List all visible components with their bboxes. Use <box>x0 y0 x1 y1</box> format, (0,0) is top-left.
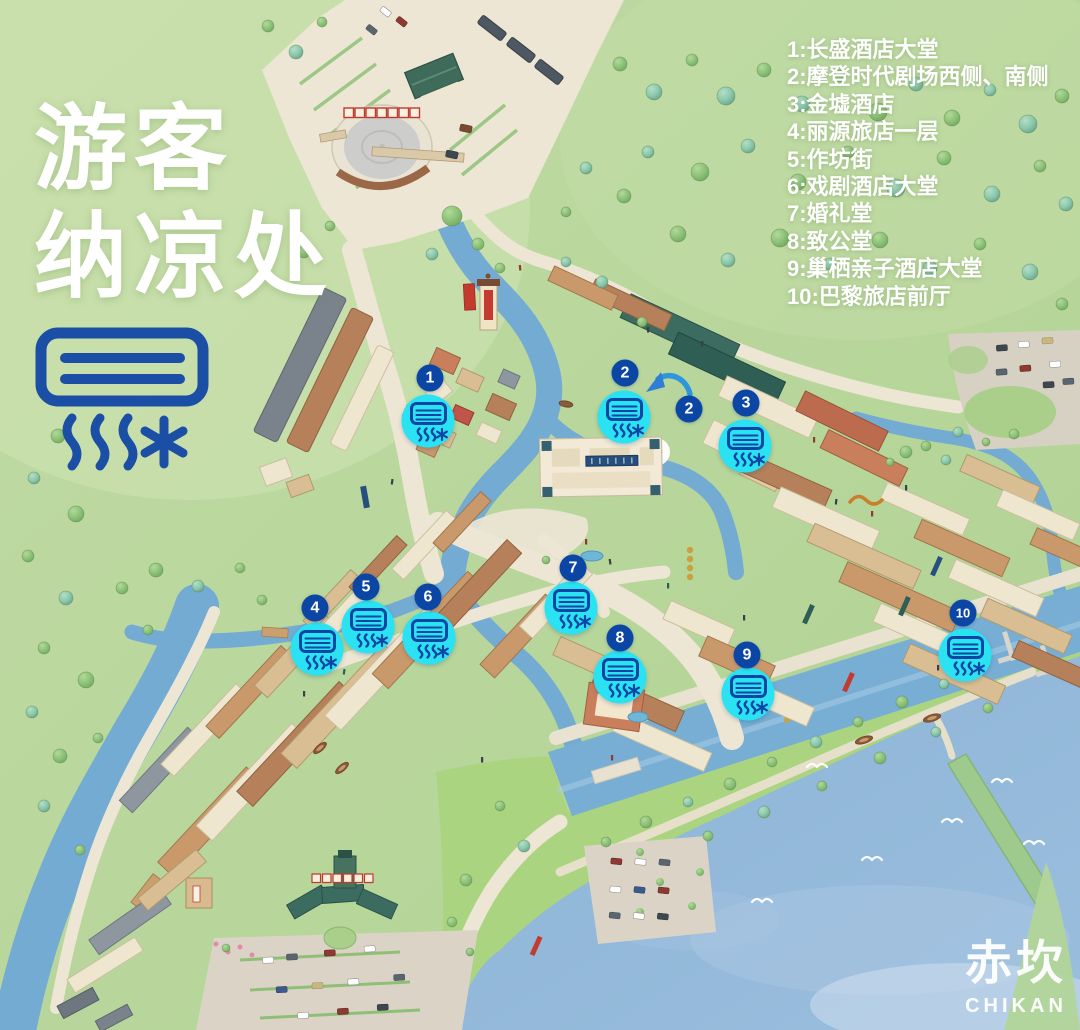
ac-marker-icon <box>406 399 450 443</box>
ac-marker-circle <box>342 601 395 654</box>
marker-number-badge: 10 <box>950 600 977 627</box>
ac-marker-icon <box>602 395 646 439</box>
marker-number-badge: 7 <box>560 555 587 582</box>
logo-chinese: 赤坎 <box>946 924 1080 993</box>
ac-marker-icon <box>295 627 339 671</box>
ac-marker-circle <box>598 391 651 444</box>
ac-marker-icon <box>943 633 987 677</box>
snowflake-icon <box>633 425 643 436</box>
marker-number-badge: 6 <box>415 584 442 611</box>
snowflake-icon <box>326 657 336 668</box>
ac-marker-circle <box>291 623 344 676</box>
marker-number-badge-extra-2: 2 <box>676 396 703 423</box>
snowflake-icon <box>377 635 387 646</box>
ac-marker-icon <box>723 424 767 468</box>
snowflake-icon <box>437 429 447 440</box>
ac-marker-circle <box>722 668 775 721</box>
marker-layer: 1 2 <box>0 0 1080 1030</box>
chikan-logo: 赤坎 CHIKAN <box>946 924 1080 1018</box>
ac-marker-circle <box>402 395 455 448</box>
marker-number-badge: 5 <box>353 574 380 601</box>
ac-marker-icon <box>598 655 642 699</box>
snowflake-icon <box>974 663 984 674</box>
snowflake-icon <box>580 616 590 627</box>
ac-marker-icon <box>726 672 770 716</box>
ac-marker-icon <box>549 586 593 630</box>
marker-number-badge: 3 <box>733 390 760 417</box>
snowflake-icon <box>629 685 639 696</box>
ac-marker-icon <box>407 616 451 660</box>
ac-marker-icon <box>346 605 390 649</box>
ac-marker-circle <box>719 420 772 473</box>
ac-marker-circle <box>939 629 992 682</box>
logo-english: CHIKAN <box>946 995 1080 1018</box>
ac-marker-circle <box>403 612 456 665</box>
ac-marker-circle <box>545 582 598 635</box>
marker-number-badge: 1 <box>417 365 444 392</box>
snowflake-icon <box>438 646 448 657</box>
ac-marker-circle <box>594 651 647 704</box>
marker-number-badge: 4 <box>302 595 329 622</box>
marker-number-badge: 9 <box>734 642 761 669</box>
marker-number-badge: 2 <box>612 360 639 387</box>
chikan-cooling-map: 游客 纳凉处 1:长盛酒店大堂2:摩登时代剧场西侧、南侧3:金墟酒店4:丽源旅店… <box>0 0 1080 1030</box>
marker-number-badge: 8 <box>607 625 634 652</box>
snowflake-icon <box>754 454 764 465</box>
snowflake-icon <box>757 702 767 713</box>
